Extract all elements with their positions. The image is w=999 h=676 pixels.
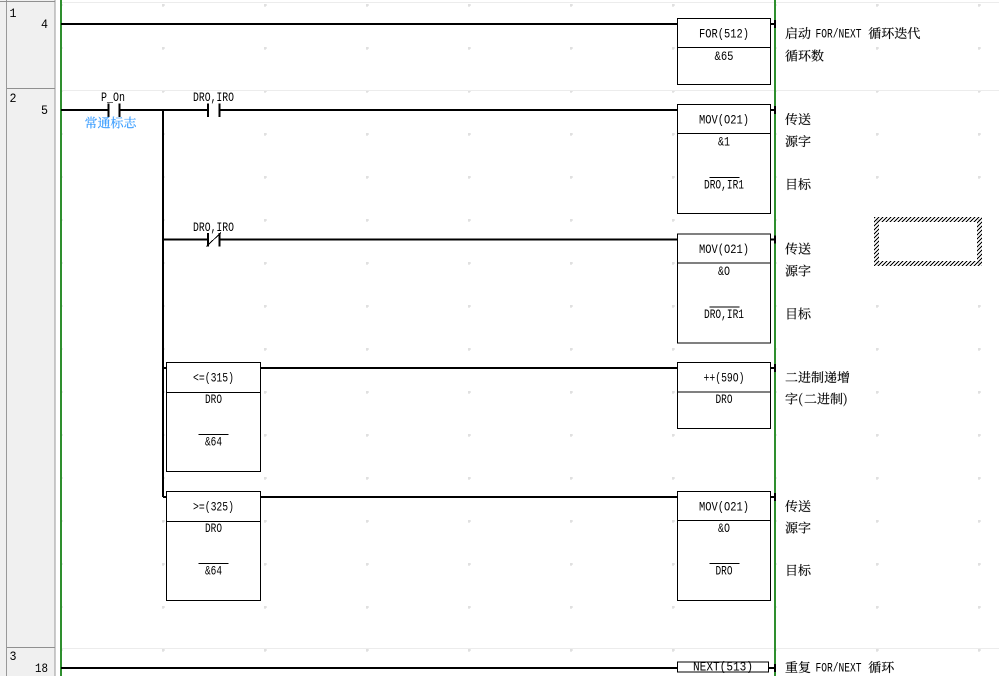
svg-text:++(59O): ++(59O) — [704, 371, 745, 386]
svg-text:MOV(O21): MOV(O21) — [699, 113, 749, 128]
svg-text:DRO: DRO — [205, 521, 222, 536]
svg-text:FOR(512): FOR(512) — [699, 27, 749, 42]
svg-text:DRO: DRO — [205, 392, 222, 407]
svg-text:3: 3 — [10, 649, 17, 664]
svg-text:DRO,IR1: DRO,IR1 — [704, 307, 744, 322]
svg-text:18: 18 — [35, 661, 48, 676]
svg-text:NEXT(513): NEXT(513) — [693, 660, 753, 675]
svg-text:P_On: P_On — [101, 90, 125, 105]
svg-text:DRO: DRO — [716, 392, 733, 407]
svg-text:&O: &O — [718, 521, 730, 536]
svg-text:FOR/NEXT: FOR/NEXT — [816, 661, 862, 676]
svg-text:2: 2 — [10, 91, 17, 106]
svg-text:4: 4 — [41, 17, 48, 32]
svg-text:&64: &64 — [205, 564, 222, 579]
svg-text:<=(315): <=(315) — [193, 371, 234, 386]
svg-text:&64: &64 — [205, 435, 222, 450]
svg-text:FOR/NEXT: FOR/NEXT — [816, 27, 862, 42]
svg-text:1: 1 — [10, 6, 17, 21]
svg-text:DRO: DRO — [716, 564, 733, 579]
svg-text:DRO,IR1: DRO,IR1 — [704, 178, 744, 193]
svg-text:&1: &1 — [718, 135, 730, 150]
svg-text:DRO,IRO: DRO,IRO — [193, 220, 234, 235]
svg-text:MOV(O21): MOV(O21) — [699, 242, 749, 257]
svg-text:DRO,IRO: DRO,IRO — [193, 90, 234, 105]
svg-text:5: 5 — [41, 103, 48, 118]
svg-text:>=(325): >=(325) — [193, 500, 234, 515]
svg-text:&65: &65 — [715, 49, 734, 64]
svg-text:&O: &O — [718, 264, 730, 279]
svg-text:MOV(O21): MOV(O21) — [699, 500, 749, 515]
